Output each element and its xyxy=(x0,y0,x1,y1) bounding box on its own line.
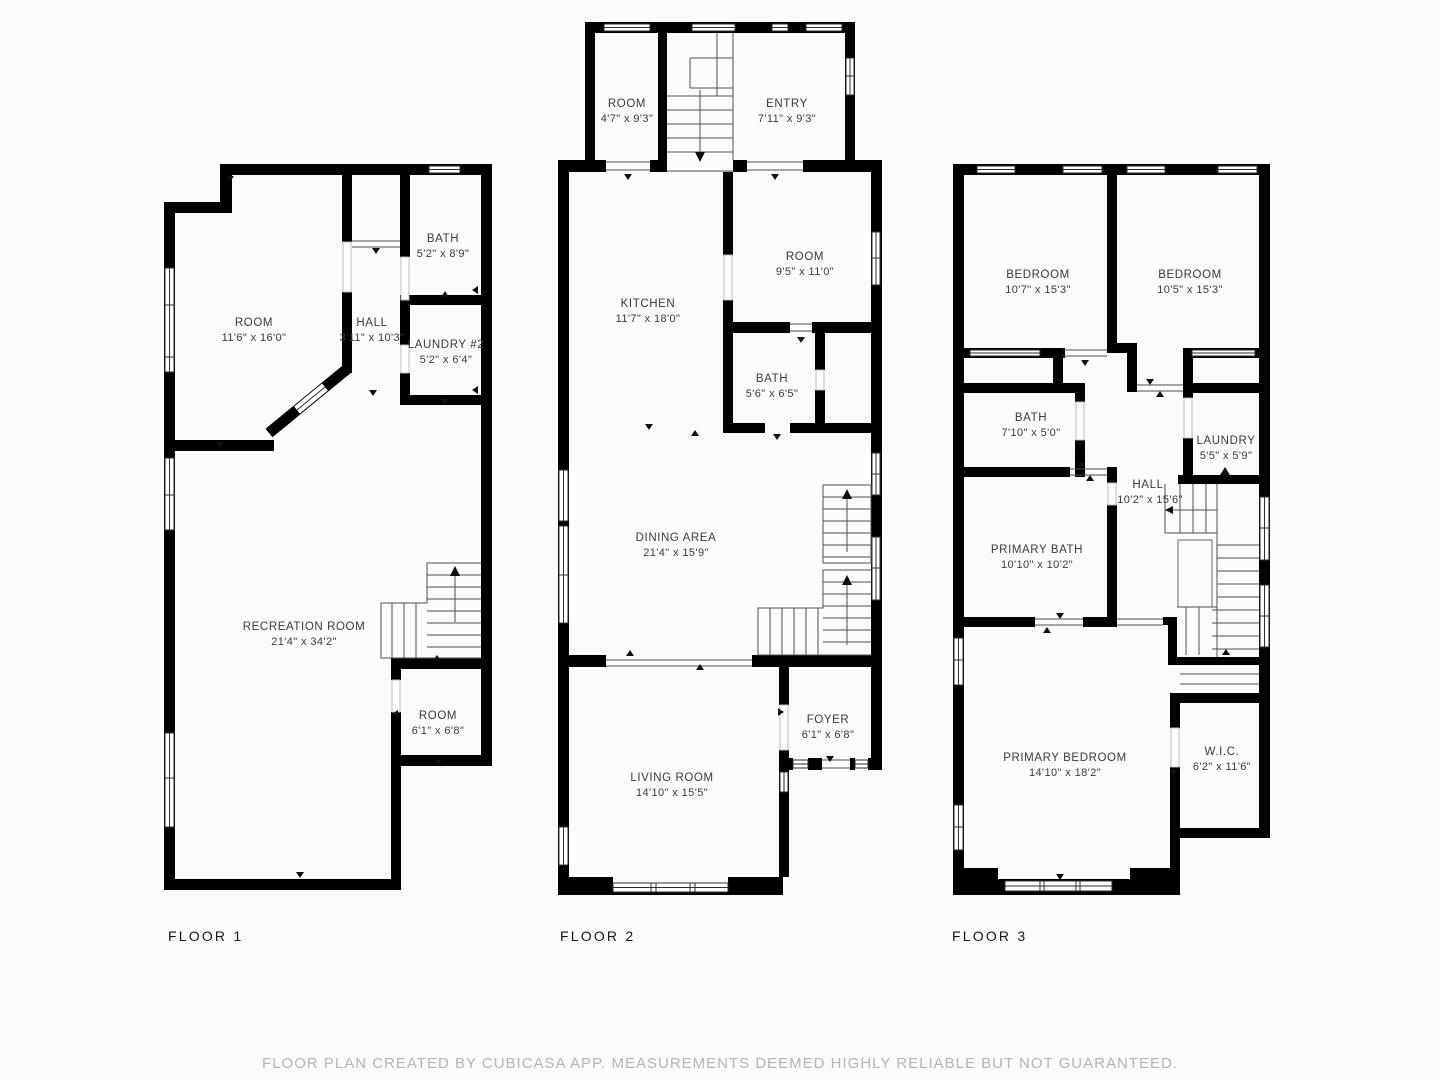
room-dims: 6'1" x 6'8" xyxy=(412,725,465,737)
room-label: W.I.C. xyxy=(1205,746,1240,758)
room-label: LAUNDRY #2 xyxy=(408,339,485,351)
floor-1-walls xyxy=(164,164,492,890)
room-dims: 10'10" x 10'2" xyxy=(1001,559,1073,571)
room-label: FOYER xyxy=(807,714,850,726)
room-label: HALL xyxy=(356,317,387,329)
room-dims: 11'7" x 18'0" xyxy=(616,313,681,325)
floor-plan-page: ROOM 11'6" x 16'0" HALL 3'11" x 10'3" BA… xyxy=(0,0,1440,1080)
room-dims: 14'10" x 18'2" xyxy=(1029,767,1101,779)
floor-2-windows xyxy=(559,24,880,892)
room-label: KITCHEN xyxy=(621,298,676,310)
room-dims: 5'2" x 6'4" xyxy=(420,354,473,366)
floor-3-walls xyxy=(953,164,1270,895)
room-label: DINING AREA xyxy=(636,532,717,544)
room-label: PRIMARY BATH xyxy=(991,544,1083,556)
floor-3-plan: BEDROOM 10'7" x 15'3" BEDROOM 10'5" x 15… xyxy=(952,164,1270,944)
floor-1-label: FLOOR 1 xyxy=(168,928,243,944)
room-label: ROOM xyxy=(786,251,824,263)
room-dims: 11'6" x 16'0" xyxy=(222,332,287,344)
floor-1-stairs xyxy=(381,563,481,658)
floor-3-label: FLOOR 3 xyxy=(952,928,1027,944)
room-dims: 7'11" x 9'3" xyxy=(758,113,816,125)
room-dims: 4'7" x 9'3" xyxy=(601,113,654,125)
room-label: LIVING ROOM xyxy=(630,772,713,784)
room-dims: 6'2" x 11'6" xyxy=(1193,761,1251,773)
room-label: BATH xyxy=(1015,412,1047,424)
room-dims: 6'1" x 6'8" xyxy=(802,729,855,741)
room-dims: 14'10" x 15'5" xyxy=(636,787,708,799)
disclaimer-text: FLOOR PLAN CREATED BY CUBICASA APP. MEAS… xyxy=(262,1055,1178,1072)
floor-2-walls xyxy=(558,22,882,895)
room-label: BATH xyxy=(756,373,788,385)
room-label: BATH xyxy=(427,233,459,245)
room-dims: 10'7" x 15'3" xyxy=(1005,284,1071,296)
floor-2-plan: ROOM 4'7" x 9'3" ENTRY 7'11" x 9'3" KITC… xyxy=(558,22,882,944)
floor-plan-canvas: ROOM 11'6" x 16'0" HALL 3'11" x 10'3" BA… xyxy=(0,0,1440,1080)
room-dims: 7'10" x 5'0" xyxy=(1001,427,1060,439)
room-label: HALL xyxy=(1132,479,1163,491)
room-label: RECREATION ROOM xyxy=(243,621,366,633)
room-label: ENTRY xyxy=(766,98,808,110)
room-label: BEDROOM xyxy=(1158,269,1222,281)
room-label: BEDROOM xyxy=(1006,269,1070,281)
room-dims: 21'4" x 15'9" xyxy=(643,547,709,559)
floor-2-stairs xyxy=(667,33,871,655)
room-dims: 5'5" x 5'9" xyxy=(1200,450,1253,462)
room-dims: 10'2" x 15'6" xyxy=(1117,494,1183,506)
room-label: ROOM xyxy=(235,317,273,329)
room-dims: 5'6" x 6'5" xyxy=(746,388,799,400)
room-label: LAUNDRY xyxy=(1197,435,1256,447)
floor-1-plan: ROOM 11'6" x 16'0" HALL 3'11" x 10'3" BA… xyxy=(164,164,492,944)
room-dims: 9'5" x 11'0" xyxy=(776,266,834,278)
room-dims: 21'4" x 34'2" xyxy=(271,636,337,648)
room-dims: 5'2" x 8'9" xyxy=(417,248,470,260)
room-dims: 10'5" x 15'3" xyxy=(1157,284,1223,296)
floor-1-door-openings xyxy=(343,241,409,712)
room-label: ROOM xyxy=(419,710,457,722)
room-label: PRIMARY BEDROOM xyxy=(1003,752,1127,764)
room-label: ROOM xyxy=(608,98,646,110)
floor-2-label: FLOOR 2 xyxy=(560,928,635,944)
room-dims: 3'11" x 10'3" xyxy=(340,332,405,344)
